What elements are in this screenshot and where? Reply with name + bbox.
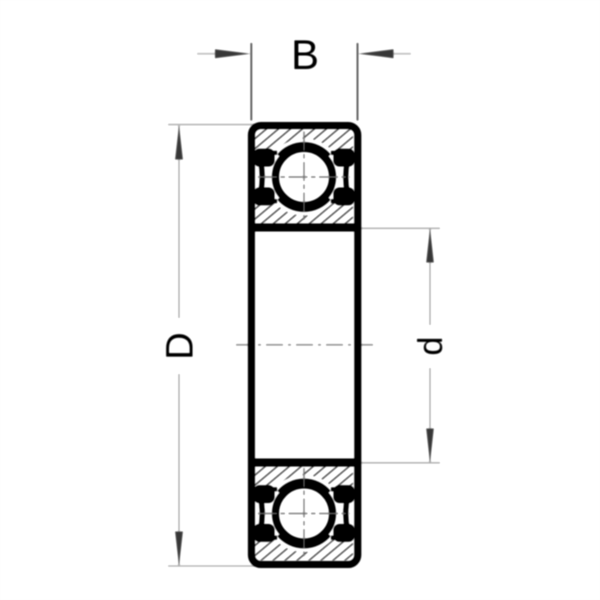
- svg-text:B: B: [291, 31, 319, 78]
- svg-text:d: d: [412, 337, 450, 356]
- svg-text:D: D: [160, 332, 202, 359]
